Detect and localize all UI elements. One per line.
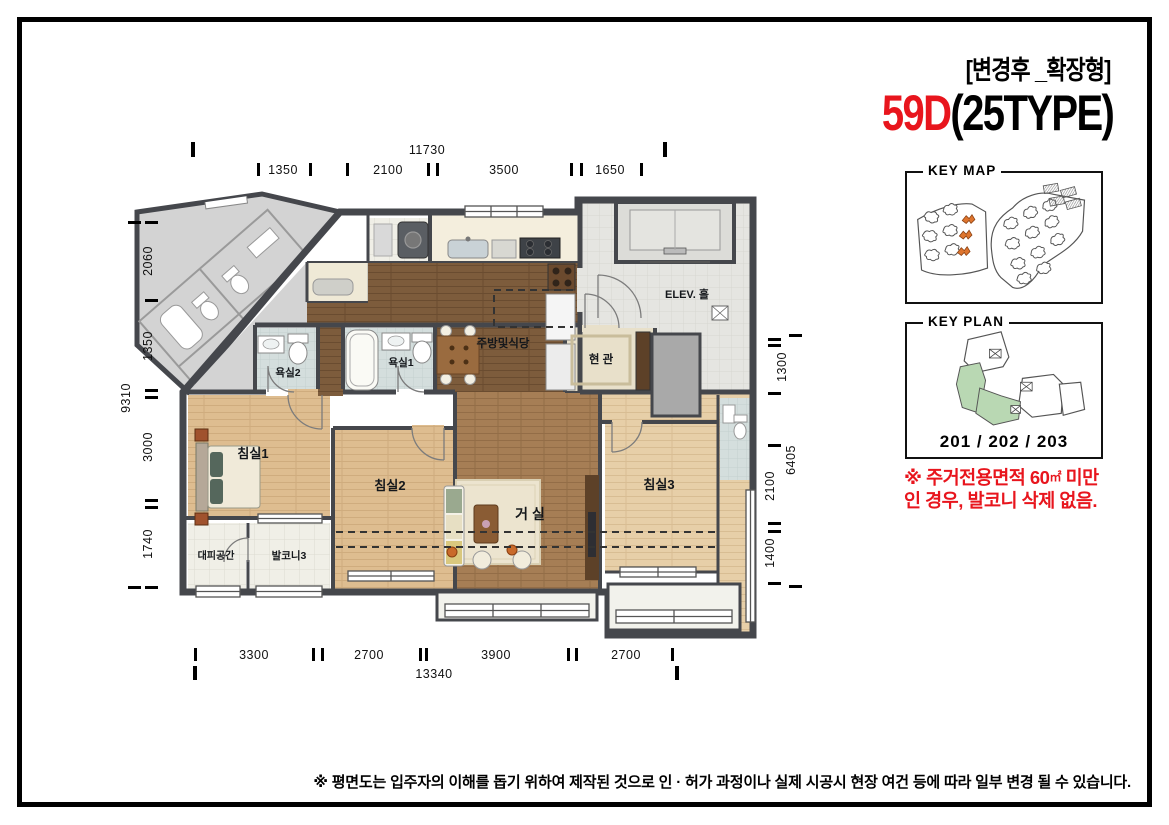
balcony-notice-line2: 인 경우, 발코니 삭제 없음. (904, 489, 1099, 512)
dim-right-2: 1400 (763, 538, 777, 568)
label-entrance: 현 관 (589, 352, 614, 366)
dim-left-0: 2060 (141, 246, 155, 276)
label-bath2: 욕실2 (275, 366, 300, 379)
label-kitchen: 주방및식당 (477, 336, 530, 350)
dim-top-3: 1650 (595, 163, 625, 177)
disclaimer-text: ※ 평면도는 입주자의 이해를 돕기 위하여 제작된 것으로 인 · 허가 과정… (0, 771, 1131, 792)
dim-bottom-2: 3900 (481, 648, 511, 662)
dim-bottom-total: 13340 (415, 667, 452, 681)
key-plan-panel: KEY PLAN 201 / 202 / 203 (905, 322, 1103, 459)
dim-left-2: 3000 (141, 432, 155, 462)
dim-right-1: 2100 (763, 471, 777, 501)
label-elev-hall: ELEV. 홀 (665, 287, 709, 301)
label-bath1: 욕실1 (388, 356, 413, 369)
plan-change-tag-text: [변경후 _확장형] (966, 50, 1111, 87)
unit-type-title: 59D(25TYPE) (824, 88, 1113, 138)
plan-change-tag: [변경후 _확장형] (938, 50, 1111, 87)
floorplan-page: [변경후 _확장형] 59D(25TYPE) KEY MAP (0, 0, 1169, 825)
label-bedroom3: 침실3 (643, 477, 674, 492)
label-bedroom1: 침실1 (237, 446, 268, 461)
key-map-panel: KEY MAP (905, 171, 1103, 304)
label-shelter: 대피공간 (198, 549, 236, 562)
highlighted-units (956, 363, 1020, 425)
label-balcony3: 발코니3 (272, 549, 307, 562)
key-map-sketch (907, 173, 1101, 302)
dim-bottom-0: 3300 (239, 648, 269, 662)
balcony-notice: ※ 주거전용면적 60㎡ 미만 인 경우, 발코니 삭제 없음. (904, 466, 1099, 512)
unit-numbers: 201 / 202 / 203 (907, 432, 1101, 452)
laundry (374, 222, 428, 258)
dressing-bench (313, 279, 353, 295)
dim-top-0: 1350 (268, 163, 298, 177)
dim-left-1: 1350 (141, 331, 155, 361)
unit-code: 59D (882, 85, 951, 141)
dim-left-total: 9310 (119, 383, 133, 413)
dim-top-2: 3500 (489, 163, 519, 177)
label-living: 거 실 (515, 506, 545, 522)
dim-bottom-1: 2700 (354, 648, 384, 662)
floor-plan-drawing: 침실1 침실2 침실3 거 실 주방및식당 현 관 욕실1 욕실2 대피공간 발… (105, 130, 815, 695)
unit-type-label: (25TYPE) (950, 85, 1113, 141)
dim-right-0: 1300 (775, 352, 789, 382)
dim-left-3: 1740 (141, 529, 155, 559)
dim-top-total: 11730 (409, 143, 445, 157)
balcony-notice-line1: ※ 주거전용면적 60㎡ 미만 (904, 466, 1099, 489)
dim-bottom-3: 2700 (611, 648, 641, 662)
dim-top-1: 2100 (373, 163, 403, 177)
label-bedroom2: 침실2 (374, 478, 405, 493)
dim-right-total: 6405 (784, 445, 798, 475)
